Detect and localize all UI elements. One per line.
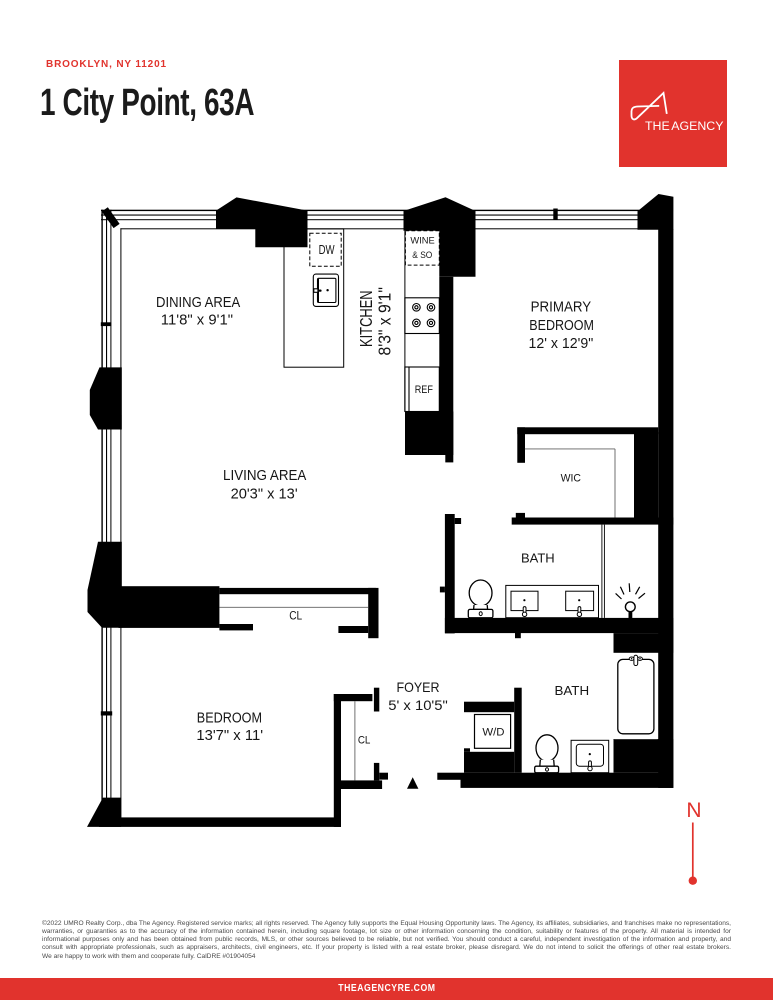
svg-text:8'3" x 9'1": 8'3" x 9'1" — [375, 287, 395, 355]
svg-text:CL: CL — [289, 610, 302, 623]
svg-text:BATH: BATH — [521, 550, 555, 565]
svg-text:DINING AREA: DINING AREA — [156, 294, 241, 311]
svg-text:LIVING AREA: LIVING AREA — [223, 466, 307, 483]
svg-text:PRIMARY: PRIMARY — [531, 298, 592, 315]
svg-text:20'3" x 13': 20'3" x 13' — [231, 486, 298, 502]
svg-text:N: N — [686, 799, 701, 822]
svg-text:12' x 12'9": 12' x 12'9" — [529, 336, 594, 352]
svg-text:WINE: WINE — [410, 235, 434, 245]
svg-text:CL: CL — [358, 735, 371, 746]
svg-text:BATH: BATH — [554, 683, 589, 698]
svg-text:13'7" x 11': 13'7" x 11' — [196, 728, 263, 744]
svg-text:WIC: WIC — [561, 472, 582, 484]
svg-text:BEDROOM: BEDROOM — [529, 317, 594, 333]
svg-text:5' x 10'5": 5' x 10'5" — [388, 698, 448, 714]
svg-text:11'8" x 9'1": 11'8" x 9'1" — [161, 313, 233, 329]
svg-text:W/D: W/D — [482, 726, 504, 738]
svg-text:& SO: & SO — [412, 250, 432, 261]
svg-text:BEDROOM: BEDROOM — [197, 710, 262, 726]
svg-text:DW: DW — [319, 244, 335, 258]
svg-text:REF: REF — [415, 384, 433, 396]
svg-text:FOYER: FOYER — [396, 680, 439, 696]
